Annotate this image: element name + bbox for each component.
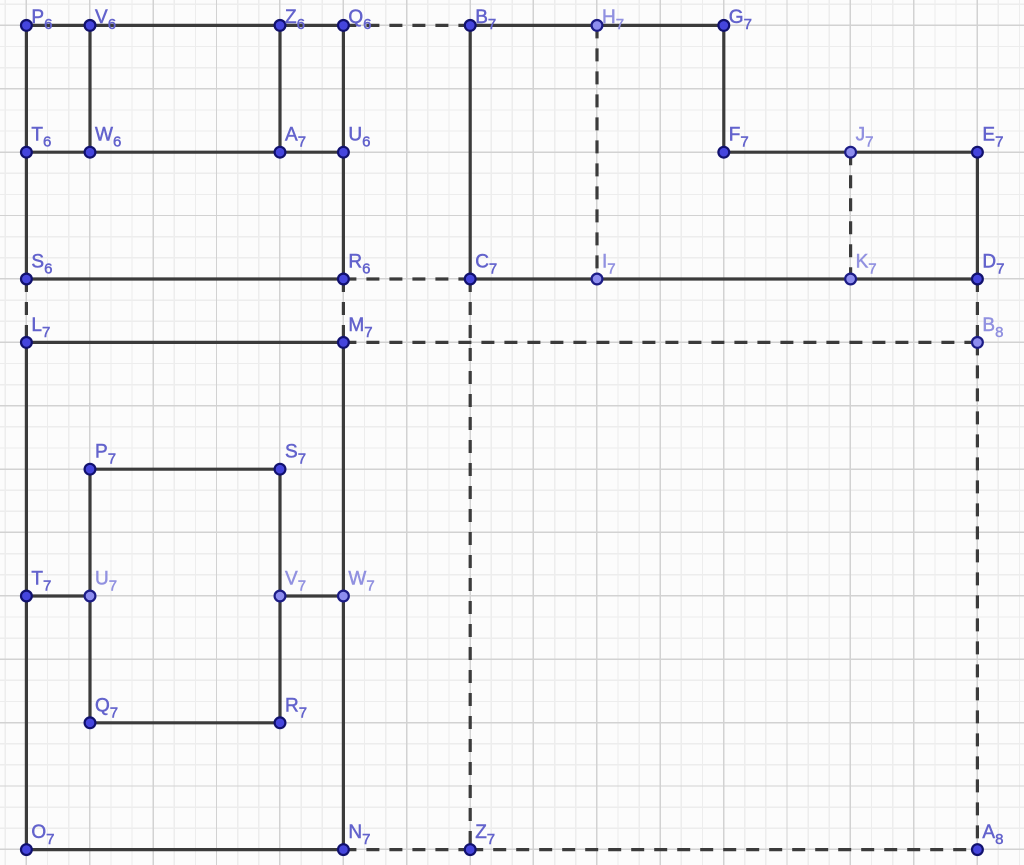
svg-text:Z6: Z6 (285, 7, 305, 33)
svg-text:Z7: Z7 (475, 822, 495, 848)
svg-text:B7: B7 (475, 7, 496, 33)
svg-text:V7: V7 (285, 569, 306, 595)
svg-text:S6: S6 (31, 252, 52, 278)
svg-text:T6: T6 (31, 125, 51, 151)
svg-text:A7: A7 (285, 125, 306, 151)
svg-text:J7: J7 (856, 125, 874, 151)
svg-text:P6: P6 (31, 7, 52, 33)
svg-text:O7: O7 (31, 822, 54, 848)
svg-text:U7: U7 (95, 569, 117, 595)
svg-text:R7: R7 (285, 695, 307, 721)
svg-text:N7: N7 (348, 822, 370, 848)
svg-text:K7: K7 (856, 252, 877, 278)
svg-text:E7: E7 (982, 125, 1003, 151)
svg-text:S7: S7 (285, 442, 306, 468)
svg-text:R6: R6 (348, 252, 370, 278)
svg-text:P7: P7 (95, 442, 116, 468)
svg-text:U6: U6 (348, 125, 370, 151)
svg-text:G7: G7 (729, 7, 752, 33)
svg-text:F7: F7 (729, 125, 749, 151)
svg-text:A8: A8 (982, 822, 1003, 848)
svg-text:Q6: Q6 (348, 7, 371, 33)
svg-text:I7: I7 (602, 252, 616, 278)
svg-text:D7: D7 (982, 252, 1004, 278)
svg-text:Q7: Q7 (95, 695, 118, 721)
svg-text:H7: H7 (602, 7, 624, 33)
svg-text:W7: W7 (348, 569, 374, 595)
svg-text:M7: M7 (348, 315, 372, 341)
svg-text:T7: T7 (31, 569, 51, 595)
svg-text:B8: B8 (982, 315, 1003, 341)
svg-text:V6: V6 (95, 7, 116, 33)
svg-text:W6: W6 (95, 125, 121, 151)
svg-text:C7: C7 (475, 252, 497, 278)
